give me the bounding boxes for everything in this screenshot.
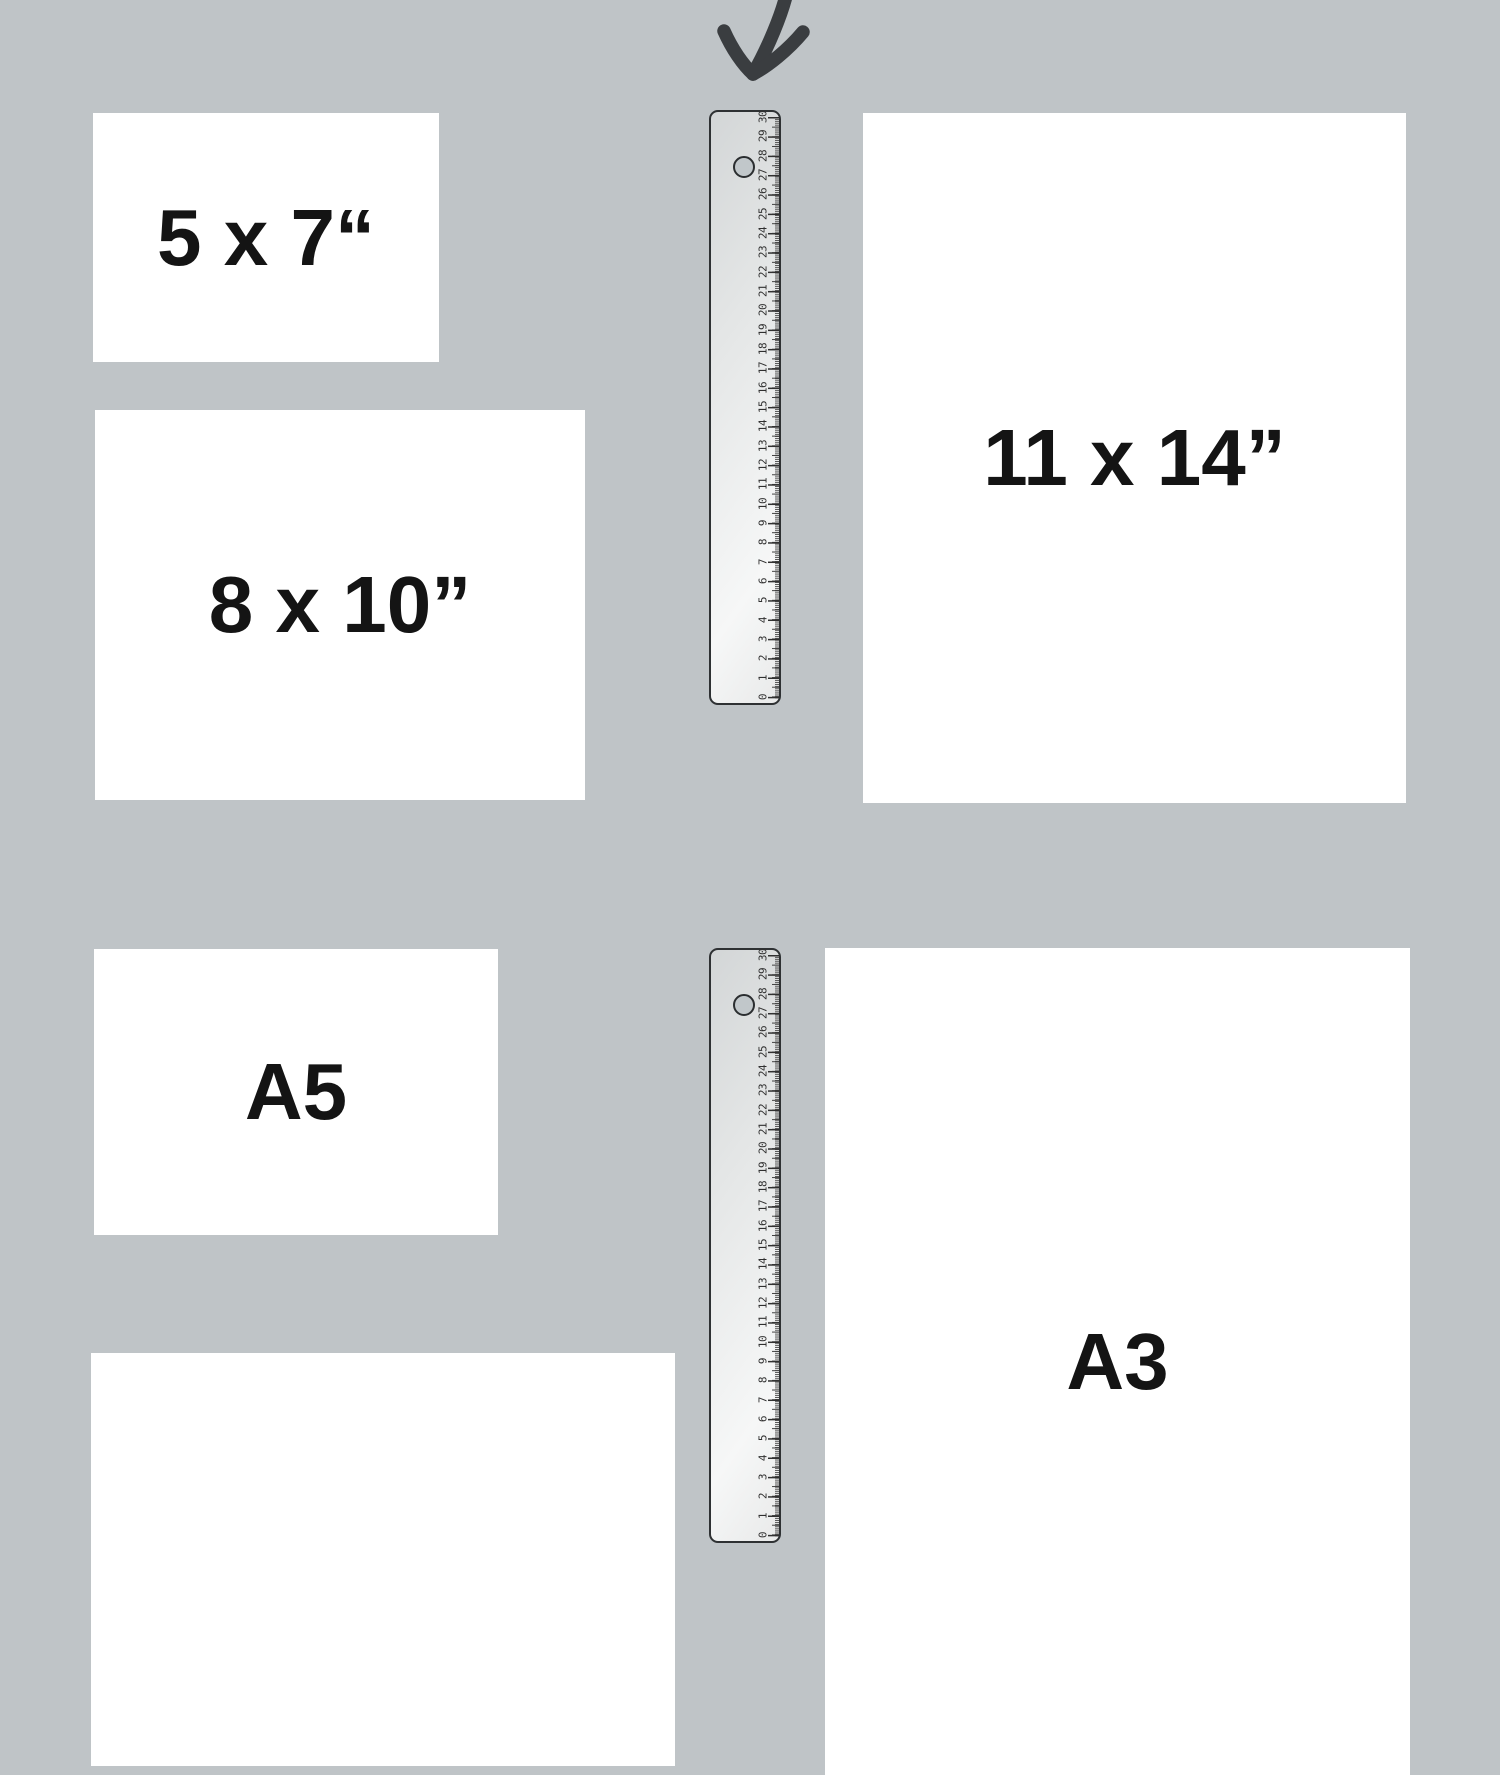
- ruler-number: 19: [757, 324, 770, 336]
- ruler-number: 9: [757, 520, 770, 526]
- ruler-number: 13: [757, 1278, 770, 1290]
- ruler-number: 1: [757, 675, 770, 681]
- paper-partial: [91, 1353, 675, 1766]
- ruler-number: 2: [757, 1493, 770, 1499]
- ruler-number: 7: [757, 1397, 770, 1403]
- ruler-number: 16: [757, 1220, 770, 1232]
- ruler-number: 24: [757, 1065, 770, 1077]
- paper-5x7: 5 x 7“: [93, 113, 439, 362]
- ruler-number: 26: [757, 1026, 770, 1038]
- ruler-number: 3: [757, 1474, 770, 1480]
- paper-8x10: 8 x 10”: [95, 410, 585, 800]
- ruler-number: 5: [757, 597, 770, 603]
- ruler-number: 14: [757, 1258, 770, 1270]
- curved-arrow-icon: [680, 0, 820, 92]
- ruler-scale: 3029282726252423222120191817161514131211…: [711, 950, 779, 1541]
- ruler-number: 1: [757, 1513, 770, 1519]
- ruler-number: 21: [757, 285, 770, 297]
- ruler-number: 17: [757, 1200, 770, 1212]
- ruler-number: 23: [757, 246, 770, 258]
- ruler-number: 18: [757, 1181, 770, 1193]
- ruler-bottom: 3029282726252423222120191817161514131211…: [709, 948, 781, 1543]
- ruler-number: 25: [757, 208, 770, 220]
- ruler-number: 19: [757, 1162, 770, 1174]
- ruler-number: 9: [757, 1358, 770, 1364]
- paper-a5-label: A5: [245, 1052, 347, 1132]
- ruler-number: 11: [757, 478, 770, 490]
- ruler-number: 20: [757, 1142, 770, 1154]
- ruler-number: 23: [757, 1084, 770, 1096]
- paper-5x7-label: 5 x 7“: [157, 198, 375, 278]
- ruler-number: 29: [757, 130, 770, 142]
- ruler-number: 15: [757, 1239, 770, 1251]
- size-comparison-canvas: 5 x 7“ 8 x 10” 11 x 14” A5 A3 3029282726…: [0, 0, 1500, 1500]
- ruler-number: 5: [757, 1435, 770, 1441]
- ruler-number: 15: [757, 401, 770, 413]
- ruler-number: 4: [757, 617, 770, 623]
- ruler-number: 8: [757, 539, 770, 545]
- ruler-number: 0: [757, 694, 770, 700]
- arrow-barb-left: [724, 31, 753, 74]
- ruler-number: 17: [757, 362, 770, 374]
- ruler-number: 20: [757, 304, 770, 316]
- ruler-number: 12: [757, 1297, 770, 1309]
- ruler-number: 16: [757, 382, 770, 394]
- ruler-number: 0: [757, 1532, 770, 1538]
- ruler-number: 13: [757, 440, 770, 452]
- ruler-number: 10: [757, 1336, 770, 1348]
- paper-11x14: 11 x 14”: [863, 113, 1406, 803]
- paper-a3-label: A3: [1066, 1322, 1168, 1402]
- ruler-number: 7: [757, 559, 770, 565]
- ruler-number: 22: [757, 1104, 770, 1116]
- ruler-number: 3: [757, 636, 770, 642]
- ruler-number: 2: [757, 655, 770, 661]
- ruler-number: 6: [757, 1416, 770, 1422]
- ruler-number: 21: [757, 1123, 770, 1135]
- paper-a3: A3: [825, 948, 1410, 1775]
- paper-11x14-label: 11 x 14”: [983, 418, 1286, 498]
- ruler-number: 12: [757, 459, 770, 471]
- ruler-number: 8: [757, 1377, 770, 1383]
- ruler-number: 24: [757, 227, 770, 239]
- ruler-top: 3029282726252423222120191817161514131211…: [709, 110, 781, 705]
- ruler-number: 18: [757, 343, 770, 355]
- ruler-number: 28: [757, 150, 770, 162]
- ruler-number: 25: [757, 1046, 770, 1058]
- ruler-number: 6: [757, 578, 770, 584]
- ruler-number: 29: [757, 968, 770, 980]
- ruler-number: 10: [757, 498, 770, 510]
- paper-a5: A5: [94, 949, 498, 1235]
- ruler-number: 27: [757, 169, 770, 181]
- ruler-number: 14: [757, 420, 770, 432]
- ruler-number: 4: [757, 1455, 770, 1461]
- ruler-number: 11: [757, 1316, 770, 1328]
- ruler-number: 22: [757, 266, 770, 278]
- ruler-number: 30: [757, 949, 770, 961]
- ruler-number: 30: [757, 111, 770, 123]
- ruler-number: 28: [757, 988, 770, 1000]
- ruler-scale: 3029282726252423222120191817161514131211…: [711, 112, 779, 703]
- paper-8x10-label: 8 x 10”: [209, 565, 471, 645]
- ruler-number: 27: [757, 1007, 770, 1019]
- ruler-number: 26: [757, 188, 770, 200]
